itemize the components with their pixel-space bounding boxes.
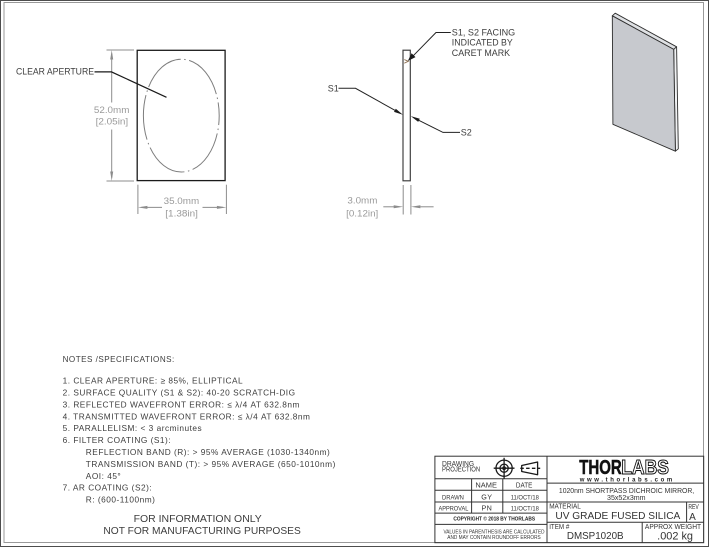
svg-text:PROJECTION: PROJECTION <box>442 467 480 474</box>
svg-text:UV GRADE FUSED SILICA: UV GRADE FUSED SILICA <box>555 511 680 522</box>
svg-text:5. PARALLELISM: < 3 arcminutes: 5. PARALLELISM: < 3 arcminutes <box>63 423 203 433</box>
svg-text:S1: S1 <box>328 84 339 94</box>
svg-text:ITEM #: ITEM # <box>549 524 569 531</box>
svg-text:6. FILTER COATING (S1):: 6. FILTER COATING (S1): <box>63 435 171 445</box>
svg-text:S2: S2 <box>461 128 472 138</box>
svg-text:CLEAR APERTURE: CLEAR APERTURE <box>16 67 94 77</box>
svg-text:NOT FOR MANUFACTURING PURPOSES: NOT FOR MANUFACTURING PURPOSES <box>103 525 300 537</box>
svg-text:.002 kg: .002 kg <box>657 531 693 543</box>
svg-text:AOI: 45°: AOI: 45° <box>86 471 121 481</box>
svg-text:CARET MARK: CARET MARK <box>452 48 510 58</box>
svg-text:APPROVAL: APPROVAL <box>439 506 469 513</box>
svg-text:NAME: NAME <box>475 480 497 489</box>
svg-text:GY: GY <box>481 492 492 501</box>
svg-text:11/OCT/18: 11/OCT/18 <box>511 494 539 501</box>
svg-text:52.0mm: 52.0mm <box>94 105 130 115</box>
svg-text:NOTES /SPECIFICATIONS:: NOTES /SPECIFICATIONS: <box>63 354 175 364</box>
svg-text:THOR: THOR <box>579 456 622 479</box>
svg-text:COPYRIGHT © 2018 BY THORLABS: COPYRIGHT © 2018 BY THORLABS <box>453 516 535 523</box>
svg-text:35x52x3mm: 35x52x3mm <box>607 495 646 502</box>
svg-text:3. REFLECTED WAVEFRONT ERROR:: 3. REFLECTED WAVEFRONT ERROR: ≤ λ/4 AT 6… <box>63 399 300 409</box>
svg-text:LABS: LABS <box>621 456 669 479</box>
svg-text:1020nm SHORTPASS DICHROIC MIRR: 1020nm SHORTPASS DICHROIC MIRROR, <box>559 488 694 495</box>
svg-text:[2.05in]: [2.05in] <box>96 117 129 127</box>
svg-text:1. CLEAR APERTURE: ≥ 85%, ELLI: 1. CLEAR APERTURE: ≥ 85%, ELLIPTICAL <box>63 376 244 386</box>
svg-text:35.0mm: 35.0mm <box>164 196 200 206</box>
svg-text:DRAWN: DRAWN <box>442 494 464 501</box>
svg-text:A: A <box>689 512 696 523</box>
svg-text:R: (600-1100nm): R: (600-1100nm) <box>86 495 156 505</box>
svg-text:REFLECTION BAND (R): > 95% AVE: REFLECTION BAND (R): > 95% AVERAGE (1030… <box>86 447 330 457</box>
svg-text:7. AR COATING (S2):: 7. AR COATING (S2): <box>63 483 153 493</box>
svg-text:AND MAY CONTAIN ROUNDOFF ERROR: AND MAY CONTAIN ROUNDOFF ERRORS <box>447 535 541 541</box>
svg-text:2. SURFACE QUALITY (S1 & S2):: 2. SURFACE QUALITY (S1 & S2): 40-20 SCRA… <box>63 388 296 398</box>
svg-text:11/OCT/18: 11/OCT/18 <box>511 506 539 513</box>
svg-text:3.0mm: 3.0mm <box>347 196 377 206</box>
svg-text:[0.12in]: [0.12in] <box>346 208 378 218</box>
svg-text:S1, S2 FACING: S1, S2 FACING <box>452 28 515 38</box>
svg-text:INDICATED BY: INDICATED BY <box>452 38 513 48</box>
svg-text:4. TRANSMITTED WAVEFRONT ERROR: 4. TRANSMITTED WAVEFRONT ERROR: ≤ λ/4 AT… <box>63 411 311 421</box>
svg-text:DMSP1020B: DMSP1020B <box>567 531 624 542</box>
svg-text:[1.38in]: [1.38in] <box>165 209 198 219</box>
svg-text:REV: REV <box>688 504 699 511</box>
svg-text:FOR INFORMATION ONLY: FOR INFORMATION ONLY <box>134 513 262 525</box>
svg-text:DATE: DATE <box>516 480 532 489</box>
svg-text:TRANSMISSION BAND (T): > 95% A: TRANSMISSION BAND (T): > 95% AVERAGE (65… <box>86 459 336 469</box>
svg-text:MATERIAL: MATERIAL <box>549 504 581 511</box>
svg-text:PN: PN <box>482 504 493 513</box>
